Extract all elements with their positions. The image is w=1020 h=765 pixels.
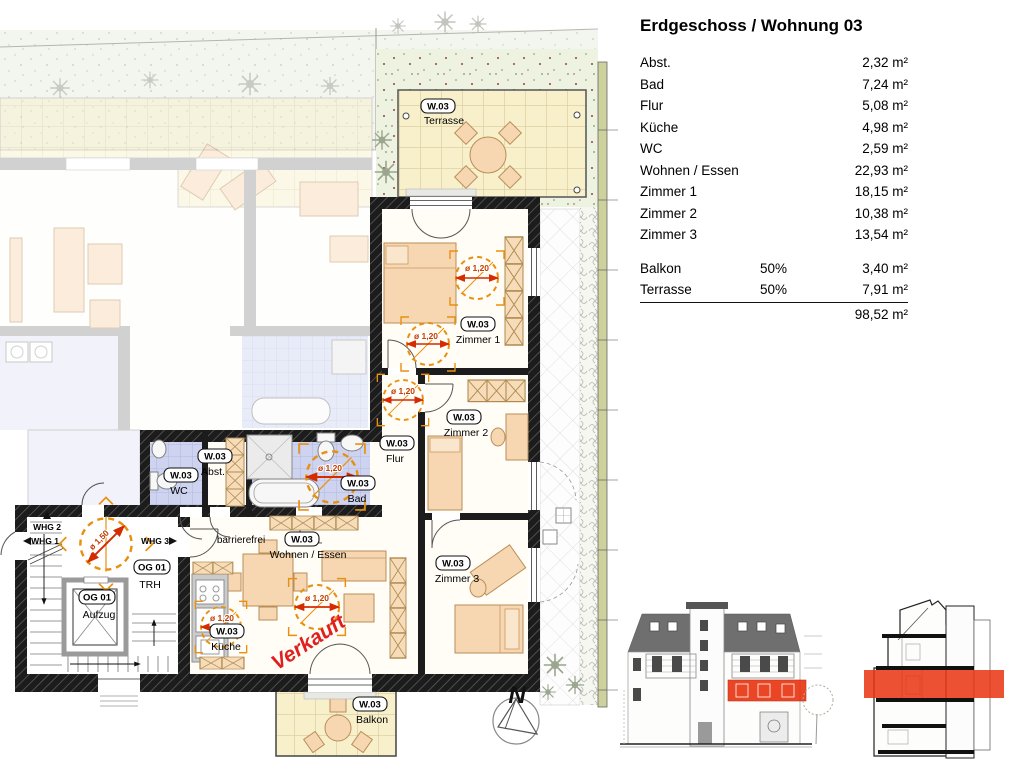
neighbor-wall: [0, 158, 372, 170]
unit-tag-zimmer1: W.03: [461, 317, 495, 331]
table-row: Balkon50%3,40 m²: [640, 258, 908, 280]
area-share: 50%: [760, 279, 862, 301]
room-label: Zimmer 1: [640, 181, 760, 203]
table-row: Küche4,98 m²: [640, 117, 908, 139]
room-label: Terrasse: [640, 279, 760, 301]
table-row: Flur5,08 m²: [640, 95, 908, 117]
svg-text:W.03: W.03: [170, 471, 192, 482]
section-elevation: [864, 600, 1004, 758]
table-row: Zimmer 118,15 m²: [640, 181, 908, 203]
bed-zimmer1: [384, 243, 456, 323]
tree-icon: [803, 685, 833, 715]
entrance-steps: [100, 696, 138, 706]
unit-tag-kueche: W.03: [210, 624, 244, 638]
room-label: Balkon: [640, 258, 760, 280]
room-label: Flur: [640, 95, 760, 117]
plant-icon: [239, 73, 261, 95]
plant-icon: [50, 78, 70, 98]
room-area: 7,24 m²: [862, 74, 908, 96]
room-name-wohnen: Wohnen / Essen: [270, 549, 347, 561]
svg-text:W.03: W.03: [204, 452, 226, 463]
room-area: 22,93 m²: [855, 160, 908, 182]
svg-text:OG 01: OG 01: [138, 563, 167, 574]
room-label: Zimmer 3: [640, 224, 760, 246]
outdoor-rows: Balkon50%3,40 m² Terrasse50%7,91 m²: [640, 258, 908, 303]
room-name-zimmer2: Zimmer 2: [444, 427, 488, 439]
svg-text:W.03: W.03: [291, 535, 313, 546]
room-label: Wohnen / Essen: [640, 160, 760, 182]
plant-icon: [390, 18, 405, 33]
room-label: Bad: [640, 74, 760, 96]
room-area: 7,91 m²: [862, 279, 908, 301]
cabinet: [390, 558, 406, 583]
plant-icon: [435, 12, 456, 33]
floor-tag-trh: OG 01: [134, 560, 170, 574]
area-table: Erdgeschoss / Wohnung 03 Abst.2,32 m² Ba…: [640, 16, 908, 326]
svg-text:W.03: W.03: [386, 439, 408, 450]
plant-icon: [142, 72, 159, 89]
shrub-icon: [540, 684, 555, 699]
unit-tag-terrasse: W.03: [421, 99, 455, 113]
shower: [332, 340, 366, 374]
svg-text:W.03: W.03: [347, 479, 369, 490]
unit-tag-balkon: W.03: [353, 697, 387, 711]
room-area: 4,98 m²: [862, 117, 908, 139]
kitchen-cabinet: [193, 562, 213, 574]
svg-text:OG 01: OG 01: [83, 593, 112, 604]
svg-text:W.03: W.03: [216, 627, 238, 638]
room-area: 3,40 m²: [862, 258, 908, 280]
wardrobe: [505, 237, 523, 264]
turning-circle-label: ø 1,20: [305, 593, 329, 603]
room-area: 2,59 m²: [862, 138, 908, 160]
room-area: 5,08 m²: [862, 95, 908, 117]
whg3-label: WHG 3: [141, 536, 169, 546]
unit-tag-flur: W.03: [380, 436, 414, 450]
area-share: 50%: [760, 258, 862, 280]
north-label: N: [508, 682, 526, 709]
hedge: [580, 207, 598, 705]
page-title: Erdgeschoss / Wohnung 03: [640, 16, 908, 36]
whg1-label: WHG 1: [31, 536, 59, 546]
turning-circle-label: ø 1,20: [391, 386, 415, 396]
floor-tag-aufzug: OG 01: [79, 590, 115, 604]
room-label: WC: [640, 138, 760, 160]
level-marks: [804, 636, 822, 668]
whg2-label: WHG 2: [33, 522, 61, 532]
room-label: Zimmer 2: [640, 203, 760, 225]
room-name-abst: Abst.: [201, 466, 225, 478]
room-area: 13,54 m²: [855, 224, 908, 246]
path-fixture: [543, 530, 557, 544]
room-label: Küche: [640, 117, 760, 139]
svg-text:W.03: W.03: [359, 700, 381, 711]
neighbor-terrace: [0, 98, 372, 158]
room-area: 10,38 m²: [855, 203, 908, 225]
table-row: Abst.2,32 m²: [640, 52, 908, 74]
turning-circle-label: ø 1,20: [210, 613, 234, 623]
plant-icon: [321, 77, 339, 95]
entrance: [698, 722, 712, 744]
sideboard: [270, 516, 292, 530]
room-area: 2,32 m²: [862, 52, 908, 74]
room-name-zimmer3: Zimmer 3: [435, 573, 479, 585]
highlight-band-section: [864, 670, 1004, 698]
bed-zimmer3: [455, 605, 523, 653]
room-name-bad: Bad: [348, 493, 367, 505]
svg-text:W.03: W.03: [453, 413, 475, 424]
room-name-terrasse: Terrasse: [424, 115, 464, 127]
turning-circle-label: ø 1,20: [465, 263, 489, 273]
shrub-icon: [375, 161, 397, 183]
bed-zimmer2: [428, 436, 462, 510]
garden-path: [540, 209, 580, 705]
room-area: 18,15 m²: [855, 181, 908, 203]
svg-text:W.03: W.03: [442, 559, 464, 570]
room-name-zimmer1: Zimmer 1: [456, 334, 500, 346]
table-row: Bad7,24 m²: [640, 74, 908, 96]
room-name-aufzug: Aufzug: [83, 609, 116, 621]
neighbor-garden-strip: [0, 30, 598, 50]
unit-tag-abst: W.03: [198, 449, 232, 463]
table-row: Terrasse50%7,91 m²: [640, 279, 908, 303]
floorplan-sheet: { "title": "Erdgeschoss / Wohnung 03", "…: [0, 0, 1020, 765]
table-row: Zimmer 210,38 m²: [640, 203, 908, 225]
svg-text:W.03: W.03: [427, 102, 449, 113]
room-name-kueche: Küche: [211, 641, 241, 653]
turning-circle-label: ø 1,20: [414, 331, 438, 341]
table-row: Wohnen / Essen22,93 m²: [640, 160, 908, 182]
svg-text:W.03: W.03: [467, 320, 489, 331]
front-elevation: [620, 602, 833, 747]
shrub-icon: [372, 130, 392, 150]
shrub-icon: [544, 654, 566, 676]
unit-tag-wc: W.03: [164, 468, 198, 482]
table-row: Zimmer 313,54 m²: [640, 224, 908, 246]
turning-circle-label: ø 1,20: [318, 463, 342, 473]
barrierefrei-note: barrierefrei: [217, 535, 265, 546]
room-name-balkon: Balkon: [356, 714, 388, 726]
fence: [598, 62, 607, 707]
room-name-wc: WC: [170, 485, 188, 497]
room-name-flur: Flur: [386, 453, 405, 465]
room-label: Abst.: [640, 52, 760, 74]
plant-icon: [470, 16, 487, 33]
wardrobe-zimmer2: [468, 380, 487, 402]
unit-tag-bad: W.03: [341, 476, 375, 490]
room-name-trh: TRH: [139, 579, 161, 591]
survey-ticks: [607, 130, 618, 690]
bathtub: [252, 398, 330, 424]
table-row: WC2,59 m²: [640, 138, 908, 160]
total-area: 98,52 m²: [640, 303, 908, 326]
unit-tag-zimmer2: W.03: [447, 410, 481, 424]
shrub-icon: [566, 676, 584, 694]
unit-tag-wohnen: W.03: [285, 532, 319, 546]
unit-tag-zimmer3: W.03: [436, 556, 470, 570]
